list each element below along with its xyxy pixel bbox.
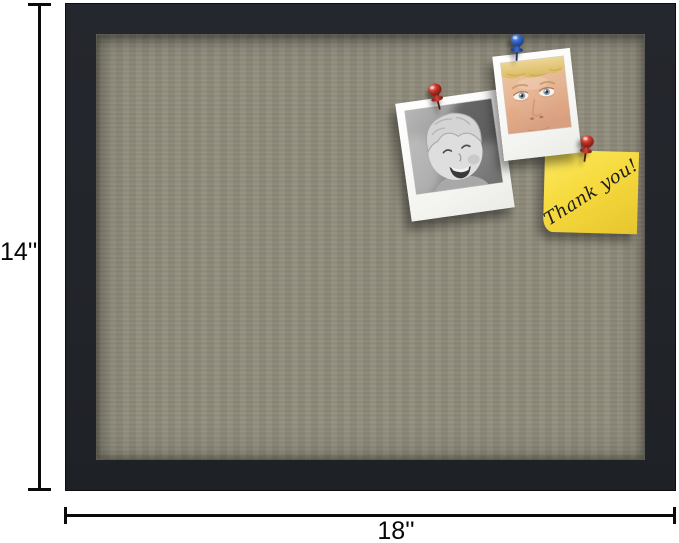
height-dimension-line xyxy=(38,3,41,491)
width-dimension-cap-right xyxy=(673,507,676,524)
pushpin-blue-icon xyxy=(505,34,528,65)
polaroid-photo-bw xyxy=(395,89,515,221)
width-dimension-label: 18'' xyxy=(354,519,438,543)
polaroid-photo-color xyxy=(492,48,581,161)
width-dimension-cap-left xyxy=(64,507,67,524)
pushpin-red-icon xyxy=(573,134,599,167)
height-dimension-cap-top xyxy=(28,3,51,6)
product-dimension-image: Thank you! xyxy=(0,0,679,543)
height-dimension-cap-bottom xyxy=(28,488,51,491)
width-dimension-line xyxy=(64,514,676,517)
bulletin-board-frame xyxy=(65,3,676,491)
height-dimension-label: 14'' xyxy=(0,240,34,265)
color-child-photo xyxy=(500,56,572,135)
bw-child-photo xyxy=(404,98,503,194)
